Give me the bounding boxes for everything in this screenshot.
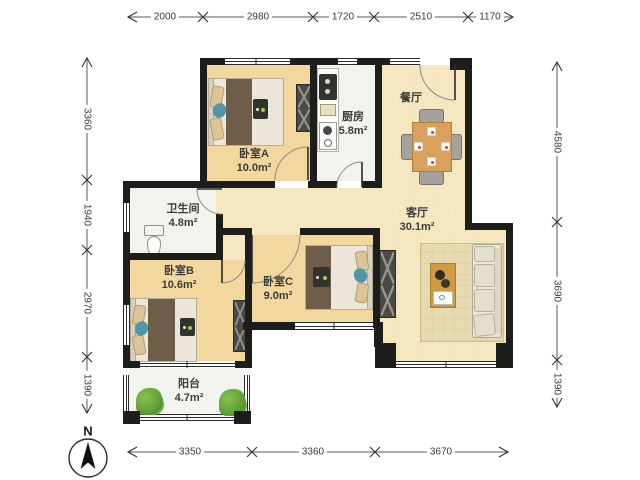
floor-plan: 卧室A 10.0m² 厨房 5.8m² 餐厅 客厅 30.1m² 卫生间 4.8… <box>0 0 640 480</box>
dim-right-0: 4580 <box>552 128 563 156</box>
room-name: 卧室A <box>237 147 272 161</box>
wall <box>373 228 380 328</box>
sink-basin <box>324 139 332 147</box>
room-area: 4.7m² <box>175 391 204 405</box>
tray-item <box>439 295 445 300</box>
sofa-cushion <box>474 246 495 262</box>
window-living-bottom <box>396 361 496 368</box>
place-setting <box>414 142 423 151</box>
dim-top-4: 1170 <box>476 12 504 23</box>
dim-bottom-1: 3360 <box>299 447 327 458</box>
window-kitchen-top <box>338 58 357 65</box>
bed-blanket <box>148 299 175 361</box>
dim-right-2: 1390 <box>552 370 563 398</box>
window-bedroom-c-bottom <box>295 322 374 330</box>
room-name: 餐厅 <box>400 91 422 105</box>
wall <box>235 361 252 368</box>
room-label-balcony: 阳台 4.7m² <box>175 377 204 405</box>
room-label-bedroom-a: 卧室A 10.0m² <box>237 147 272 175</box>
window-dining-top <box>390 58 420 65</box>
window-balcony-bottom <box>139 414 235 421</box>
room-label-kitchen: 厨房 5.8m² <box>339 110 368 138</box>
room-name: 厨房 <box>339 110 368 124</box>
wall <box>465 58 472 230</box>
room-area: 30.1m² <box>400 220 435 234</box>
dining-chair <box>419 109 444 123</box>
room-label-living: 客厅 30.1m² <box>400 206 435 234</box>
stove-burner <box>325 89 330 94</box>
dim-left-1: 1940 <box>82 201 93 229</box>
wall <box>234 411 251 424</box>
wall <box>123 411 140 424</box>
place-setting <box>441 142 450 151</box>
wall <box>496 343 513 368</box>
room-area: 5.8m² <box>339 124 368 138</box>
dim-top-0: 2000 <box>151 12 179 23</box>
stove-burner <box>325 79 330 84</box>
sink-basin <box>323 126 332 135</box>
wall <box>200 58 207 187</box>
bed-tray <box>253 99 268 119</box>
table-decor <box>441 279 450 288</box>
room-area: 4.8m² <box>167 216 200 230</box>
dim-bottom-2: 3670 <box>427 447 455 458</box>
wardrobe-living <box>379 250 396 318</box>
wall <box>317 181 337 188</box>
room-area: 10.0m² <box>237 161 272 175</box>
dim-top-3: 2510 <box>407 12 435 23</box>
dim-left-2: 2970 <box>82 289 93 317</box>
wall <box>123 253 222 260</box>
balcony-slide-door <box>140 364 235 367</box>
room-name: 卧室B <box>162 264 197 278</box>
north-label: N <box>83 424 92 439</box>
wall <box>245 228 252 368</box>
floor-hall-nook <box>223 235 245 260</box>
room-name: 客厅 <box>400 206 435 220</box>
bed-blanket <box>226 79 252 145</box>
dim-left-3: 1390 <box>82 371 93 399</box>
window-bedroom-b-left <box>123 305 130 345</box>
stove <box>319 74 337 100</box>
dim-bottom-0: 3350 <box>176 447 204 458</box>
wall <box>123 182 130 203</box>
sofa-cushion <box>473 313 496 337</box>
room-name: 卫生间 <box>167 202 200 216</box>
room-name: 卧室C <box>263 275 293 289</box>
kitchen-appliance <box>320 104 336 116</box>
sofa-cushion <box>474 289 495 312</box>
bed-tray <box>313 267 330 287</box>
dining-chair <box>419 171 444 185</box>
dim-right-1: 3690 <box>552 277 563 305</box>
room-area: 9.0m² <box>263 289 293 303</box>
toilet-tank <box>144 225 164 236</box>
dim-top-2: 1720 <box>329 12 357 23</box>
room-label-bathroom: 卫生间 4.8m² <box>167 202 200 230</box>
wall <box>123 181 223 188</box>
room-area: 10.6m² <box>162 278 197 292</box>
room-name: 阳台 <box>175 377 204 391</box>
wall <box>357 58 390 65</box>
sofa-cushion <box>474 264 495 287</box>
window-bathroom-left <box>123 203 130 232</box>
dim-top-1: 2980 <box>244 12 272 23</box>
sofa-back <box>494 248 501 334</box>
room-label-bedroom-c: 卧室C 9.0m² <box>263 275 293 303</box>
place-setting <box>427 127 436 136</box>
window-bedroom-a-top <box>225 58 290 65</box>
north-compass-icon <box>69 439 107 477</box>
room-label-dining: 餐厅 <box>400 91 422 105</box>
wall <box>123 232 130 305</box>
room-label-bedroom-b: 卧室B 10.6m² <box>162 264 197 292</box>
potted-plant <box>136 388 163 415</box>
window-balcony-left <box>123 375 129 411</box>
place-setting <box>427 157 436 166</box>
wall <box>310 58 317 188</box>
wall <box>375 58 382 188</box>
dim-left-0: 3360 <box>82 105 93 133</box>
bed-tray <box>180 318 195 336</box>
wall <box>123 361 140 368</box>
wall <box>300 228 380 235</box>
